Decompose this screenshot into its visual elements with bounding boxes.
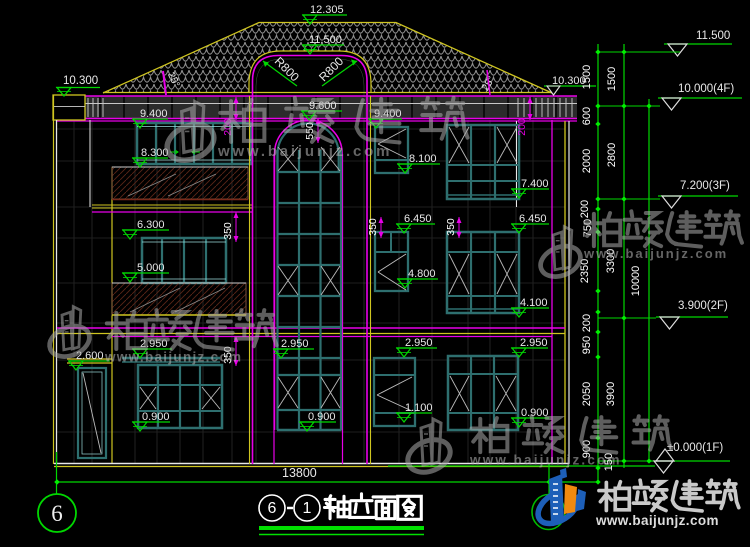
- svg-text:10000: 10000: [630, 266, 642, 297]
- svg-text:5.000: 5.000: [137, 262, 165, 274]
- svg-text:8.300: 8.300: [141, 147, 169, 159]
- svg-text:8.100: 8.100: [409, 153, 437, 165]
- svg-text:950: 950: [581, 336, 593, 354]
- svg-text:1500: 1500: [606, 67, 618, 91]
- svg-text:350: 350: [367, 218, 379, 236]
- svg-text:200: 200: [579, 200, 591, 218]
- svg-text:6.300: 6.300: [137, 219, 165, 231]
- svg-text:4.800: 4.800: [408, 268, 436, 280]
- svg-text:www.baijunjz.com: www.baijunjz.com: [217, 143, 392, 160]
- svg-text:7.200(3F): 7.200(3F): [680, 180, 730, 192]
- svg-text:10.300: 10.300: [63, 75, 98, 87]
- svg-text:13800: 13800: [282, 466, 317, 480]
- svg-text:2.950: 2.950: [520, 337, 548, 349]
- svg-text:2.950: 2.950: [405, 337, 433, 349]
- svg-text:6.450: 6.450: [519, 213, 547, 225]
- svg-text:11.500: 11.500: [309, 34, 342, 46]
- svg-text:11.500: 11.500: [696, 30, 730, 42]
- svg-text:2000: 2000: [581, 149, 593, 173]
- svg-text:±0.000(1F): ±0.000(1F): [667, 442, 723, 454]
- svg-text:0.900: 0.900: [308, 411, 336, 423]
- svg-text:4.100: 4.100: [520, 297, 548, 309]
- svg-text:12.305: 12.305: [310, 4, 344, 16]
- svg-text:www.baijunjz.com: www.baijunjz.com: [469, 452, 622, 467]
- svg-text:6: 6: [268, 500, 277, 517]
- svg-text:6: 6: [51, 501, 63, 526]
- svg-text:1: 1: [303, 500, 312, 517]
- svg-text:600: 600: [581, 107, 593, 125]
- svg-text:www.baijunjz.com: www.baijunjz.com: [583, 246, 728, 261]
- svg-text:200: 200: [516, 118, 528, 136]
- svg-text:350: 350: [445, 218, 457, 236]
- svg-text:2.950: 2.950: [281, 338, 309, 350]
- svg-text:www.baijunjz.com: www.baijunjz.com: [104, 349, 242, 364]
- svg-text:0.900: 0.900: [521, 407, 549, 419]
- svg-text:7.400: 7.400: [521, 178, 549, 190]
- svg-text:1500: 1500: [581, 65, 593, 89]
- svg-text:9.400: 9.400: [140, 108, 168, 120]
- svg-text:3.900(2F): 3.900(2F): [678, 300, 728, 312]
- svg-text:200: 200: [581, 314, 593, 332]
- svg-text:www.baijunjz.com: www.baijunjz.com: [595, 513, 719, 528]
- svg-text:3900: 3900: [605, 382, 617, 406]
- svg-text:0.900: 0.900: [142, 411, 170, 423]
- svg-text:350: 350: [222, 222, 234, 240]
- svg-text:2800: 2800: [606, 143, 618, 167]
- svg-text:10.000(4F): 10.000(4F): [678, 83, 734, 95]
- svg-text:6.450: 6.450: [404, 213, 432, 225]
- svg-text:1.100: 1.100: [405, 402, 433, 414]
- svg-text:2050: 2050: [581, 382, 593, 406]
